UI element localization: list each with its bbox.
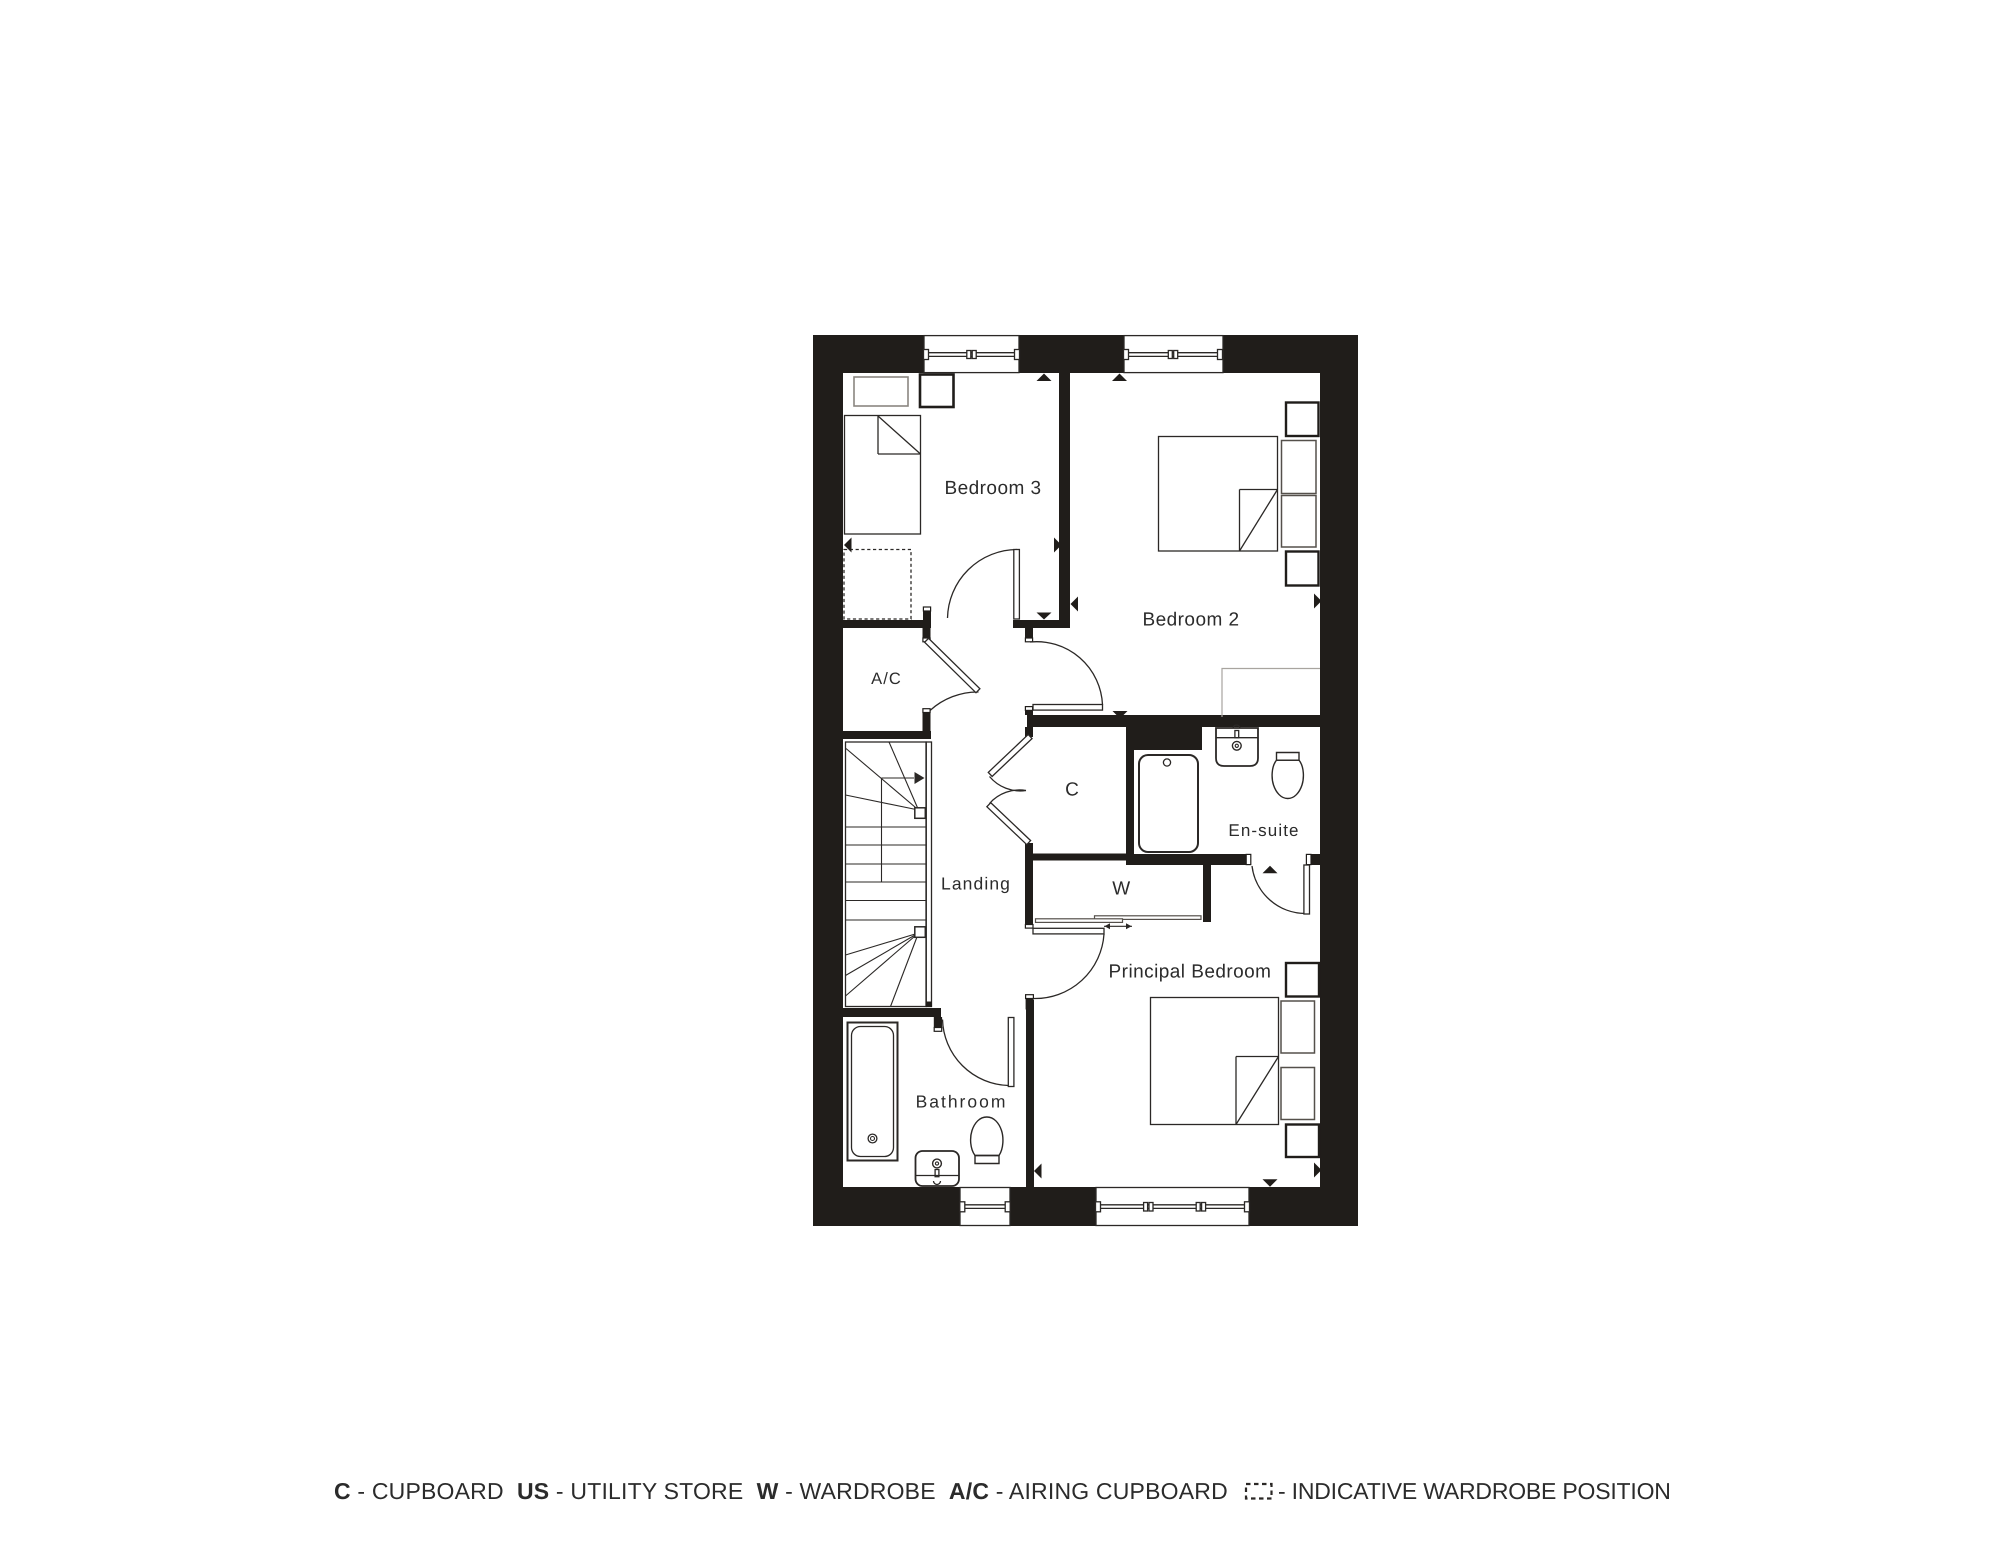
svg-text:En-suite: En-suite [1228, 821, 1299, 840]
svg-text:- INDICATIVE WARDROBE POSITION: - INDICATIVE WARDROBE POSITION [1278, 1478, 1671, 1504]
svg-text:C - CUPBOARD US - UTILITY STO: C - CUPBOARD US - UTILITY STORE W - WARD… [334, 1478, 1228, 1504]
svg-text:W: W [1112, 879, 1131, 900]
svg-text:Bedroom 3: Bedroom 3 [945, 478, 1042, 499]
svg-text:Bathroom: Bathroom [916, 1092, 1008, 1112]
svg-text:C: C [1065, 780, 1080, 801]
svg-text:Landing: Landing [941, 874, 1011, 894]
svg-text:Bedroom 2: Bedroom 2 [1143, 610, 1240, 631]
svg-text:A/C: A/C [871, 670, 902, 688]
svg-text:Principal Bedroom: Principal Bedroom [1109, 962, 1272, 983]
